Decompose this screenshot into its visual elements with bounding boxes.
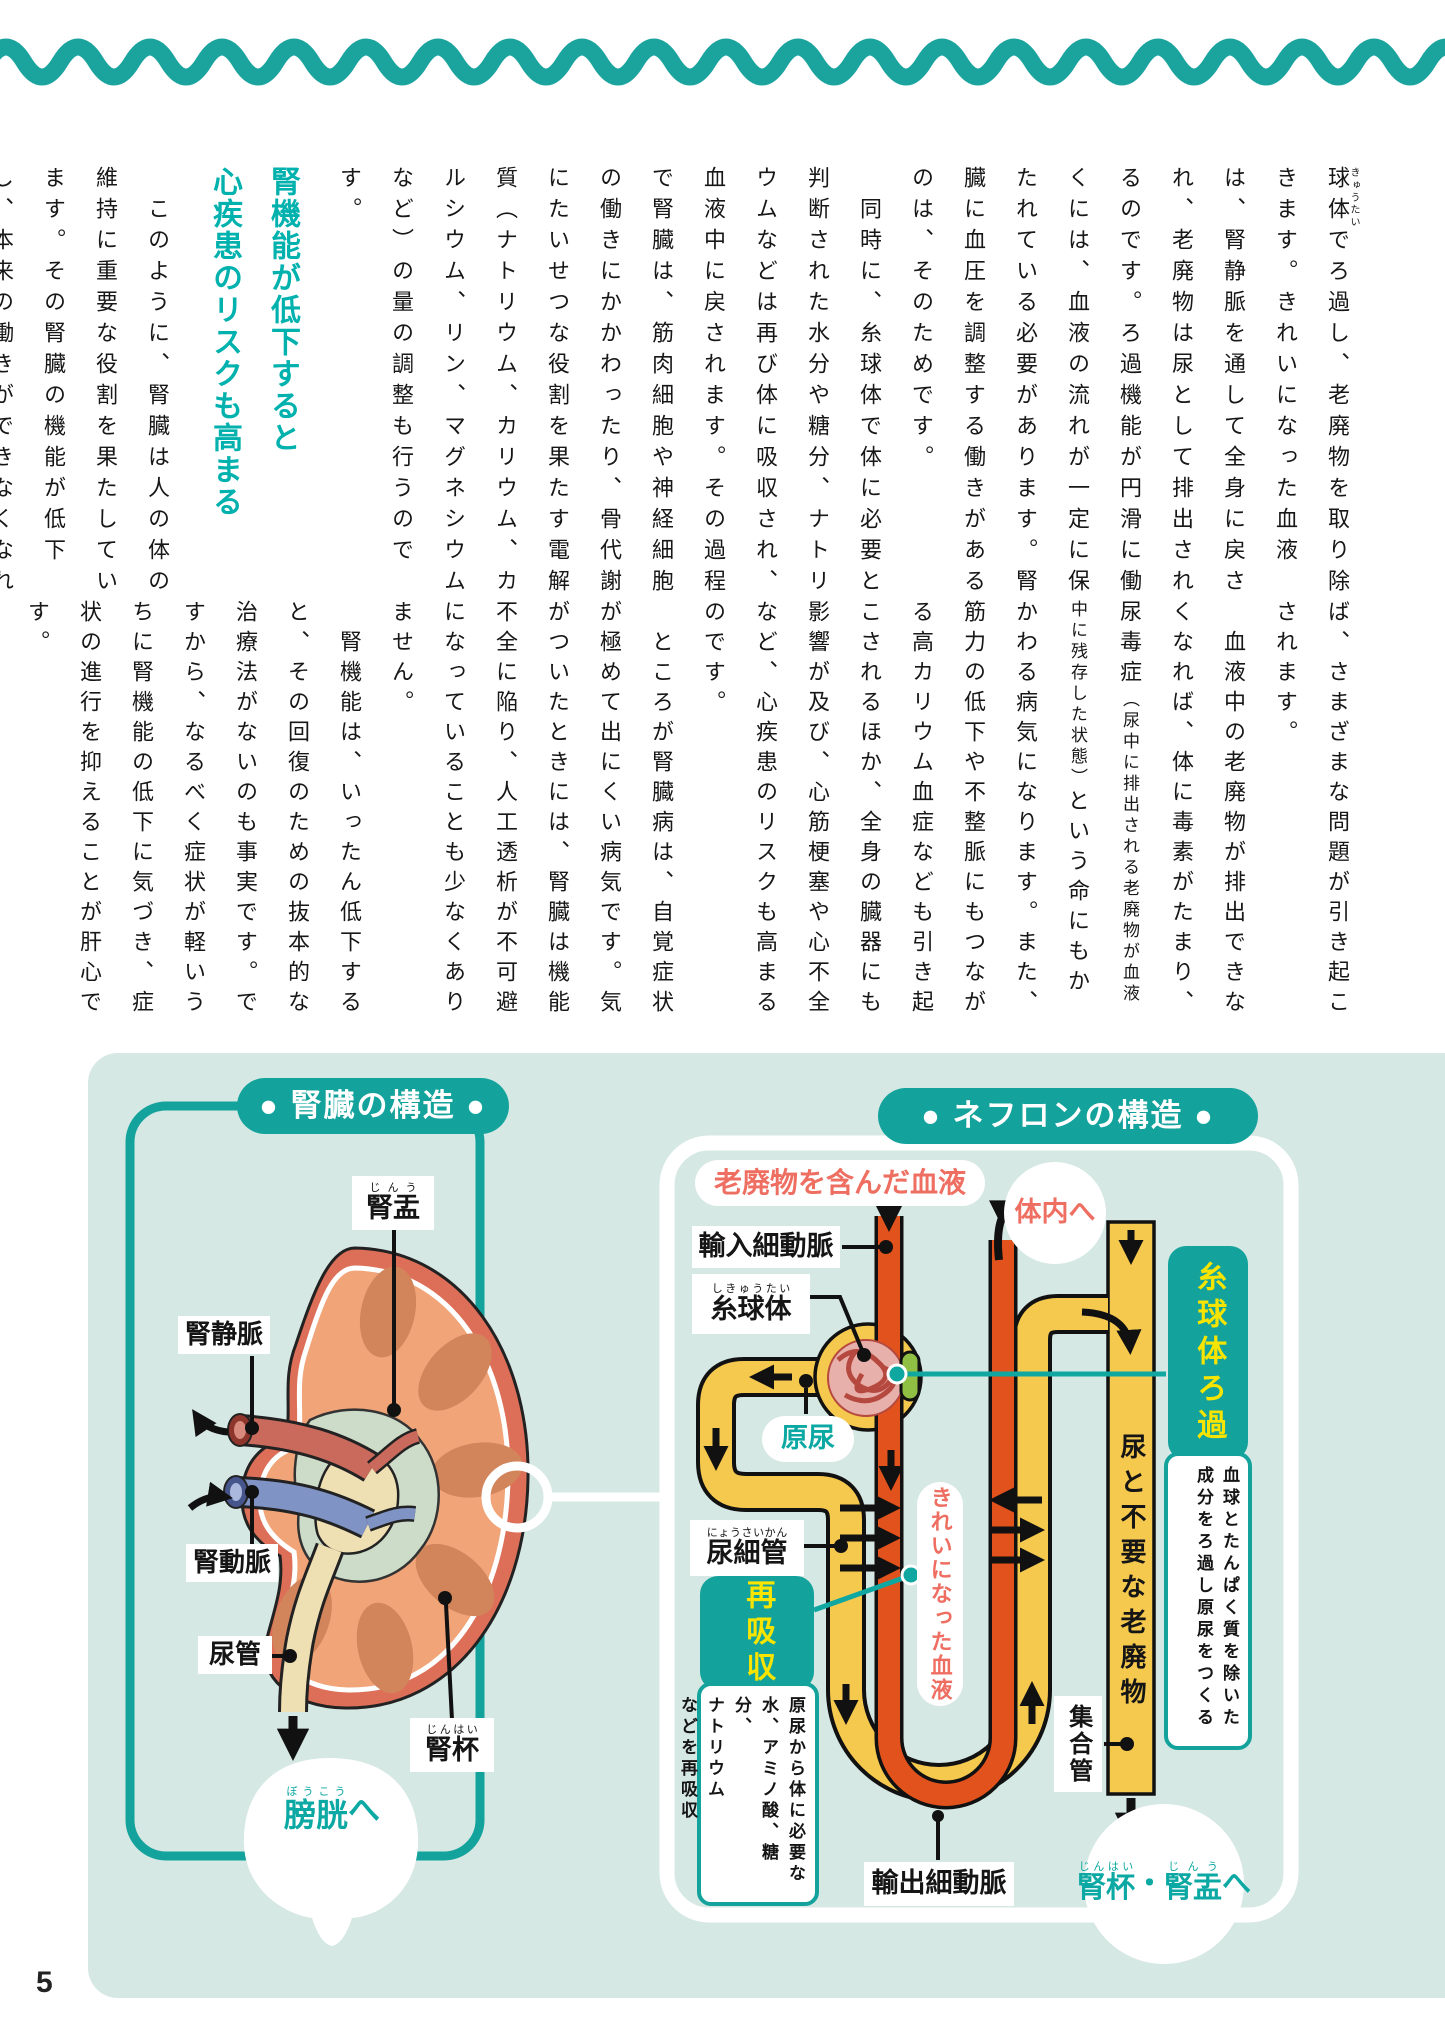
filtration-title-box: 糸球体ろ過 xyxy=(1168,1246,1248,1460)
nephron-diagram-title: ● ネフロンの構造 ● xyxy=(878,1088,1258,1144)
kidney-diagram-title: ● 腎臓の構造 ● xyxy=(237,1078,509,1134)
filtration-title-text: 糸球体ろ過 xyxy=(1191,1261,1226,1446)
article-text-row-2: ば、さまざまな問題が引き起こされます。 血液中の老廃物が排出できなくなれば、体に… xyxy=(11,600,1363,1020)
label-efferent-arteriole: 輸出細動脈 xyxy=(864,1862,1014,1906)
label-to-body: 体内へ xyxy=(1004,1162,1106,1264)
label-to-bladder: 膀胱ぼうこうへ xyxy=(256,1778,408,1842)
paragraph-5: ところが腎臓病は、自覚症状が極めて出にくい病気です。気がついたときには、腎臓は機… xyxy=(375,600,687,1020)
label-renal-vein: 腎静脈 xyxy=(178,1316,270,1354)
label-glomerulus: 糸球体しきゅうたい xyxy=(692,1274,810,1334)
label-renal-pelvis: 腎盂じんう xyxy=(352,1176,434,1230)
article-text-row-1: 球体きゅうたいでろ過し、老廃物を取り除きます。きれいになった血液は、腎静脈を通し… xyxy=(0,166,1363,602)
page-number: 5 xyxy=(36,1966,53,2000)
section-heading-line-2: 心疾患のリスクも高まる xyxy=(195,166,253,602)
collecting-duct-text: 集合管 xyxy=(1064,1704,1092,1785)
wave-path xyxy=(0,47,1445,77)
reabsorption-description: 原尿から体に必要な水、アミノ酸、糖分、ナトリウムなどを再吸収 xyxy=(697,1682,819,1906)
label-afferent-arteriole: 輸入細動脈 xyxy=(692,1226,840,1268)
label-clean-blood: きれいになった血液 xyxy=(917,1482,963,1706)
paragraph-4: 血液中の老廃物が排出できなくなれば、体に毒素がたまり、尿毒症（尿中に排出される老… xyxy=(687,600,1259,1020)
label-dirty-blood: 老廃物を含んだ血液 xyxy=(695,1160,985,1206)
wave-border-decoration xyxy=(0,22,1445,92)
page: 球体きゅうたいでろ過し、老廃物を取り除きます。きれいになった血液は、腎静脈を通し… xyxy=(0,0,1445,2043)
section-heading: 腎機能が低下すると 心疾患のリスクも高まる xyxy=(195,166,311,602)
label-urine-waste-band: 尿と不要な老廃物 xyxy=(1104,1408,1158,1738)
paragraph-6: 腎機能は、いったん低下すると、その回復のための抜本的な治療法がないのも事実です。… xyxy=(11,600,375,1020)
label-ureter: 尿管 xyxy=(198,1636,272,1674)
label-renal-calyx: 腎杯じんはい xyxy=(410,1718,494,1772)
label-to-calyx-pelvis: 腎杯じんはい・腎盂じんうへ xyxy=(1084,1804,1244,1964)
label-primitive-urine: 原尿 xyxy=(762,1416,854,1462)
reabsorption-title-text: 再吸収 xyxy=(740,1579,775,1687)
label-collecting-duct: 集合管 xyxy=(1054,1696,1102,1792)
paragraph-3: このように、腎臓は人の体の維持に重要な役割を果たしています。その腎臓の機能が低下… xyxy=(0,166,183,602)
label-renal-artery: 腎動脈 xyxy=(186,1544,278,1582)
paragraph-1: 球体きゅうたいでろ過し、老廃物を取り除きます。きれいになった血液は、腎静脈を通し… xyxy=(895,166,1363,602)
clean-blood-text: きれいになった血液 xyxy=(927,1486,952,1702)
filtration-description: 血球とたんぱく質を除いた成分をろ過し原尿をつくる xyxy=(1164,1452,1252,1750)
paragraph-2: 同時に、糸球体で体に必要と判断された水分や糖分、ナトリウムなどは再び体に吸収され… xyxy=(323,166,895,602)
urine-waste-band-text: 尿と不要な老廃物 xyxy=(1116,1433,1146,1713)
reabsorption-title-box: 再吸収 xyxy=(700,1576,814,1690)
section-heading-line-1: 腎機能が低下すると xyxy=(253,166,311,602)
paragraph-3-continued: ば、さまざまな問題が引き起こされます。 xyxy=(1259,600,1363,1020)
label-tubule: 尿細管にょうさいかん xyxy=(690,1520,804,1576)
